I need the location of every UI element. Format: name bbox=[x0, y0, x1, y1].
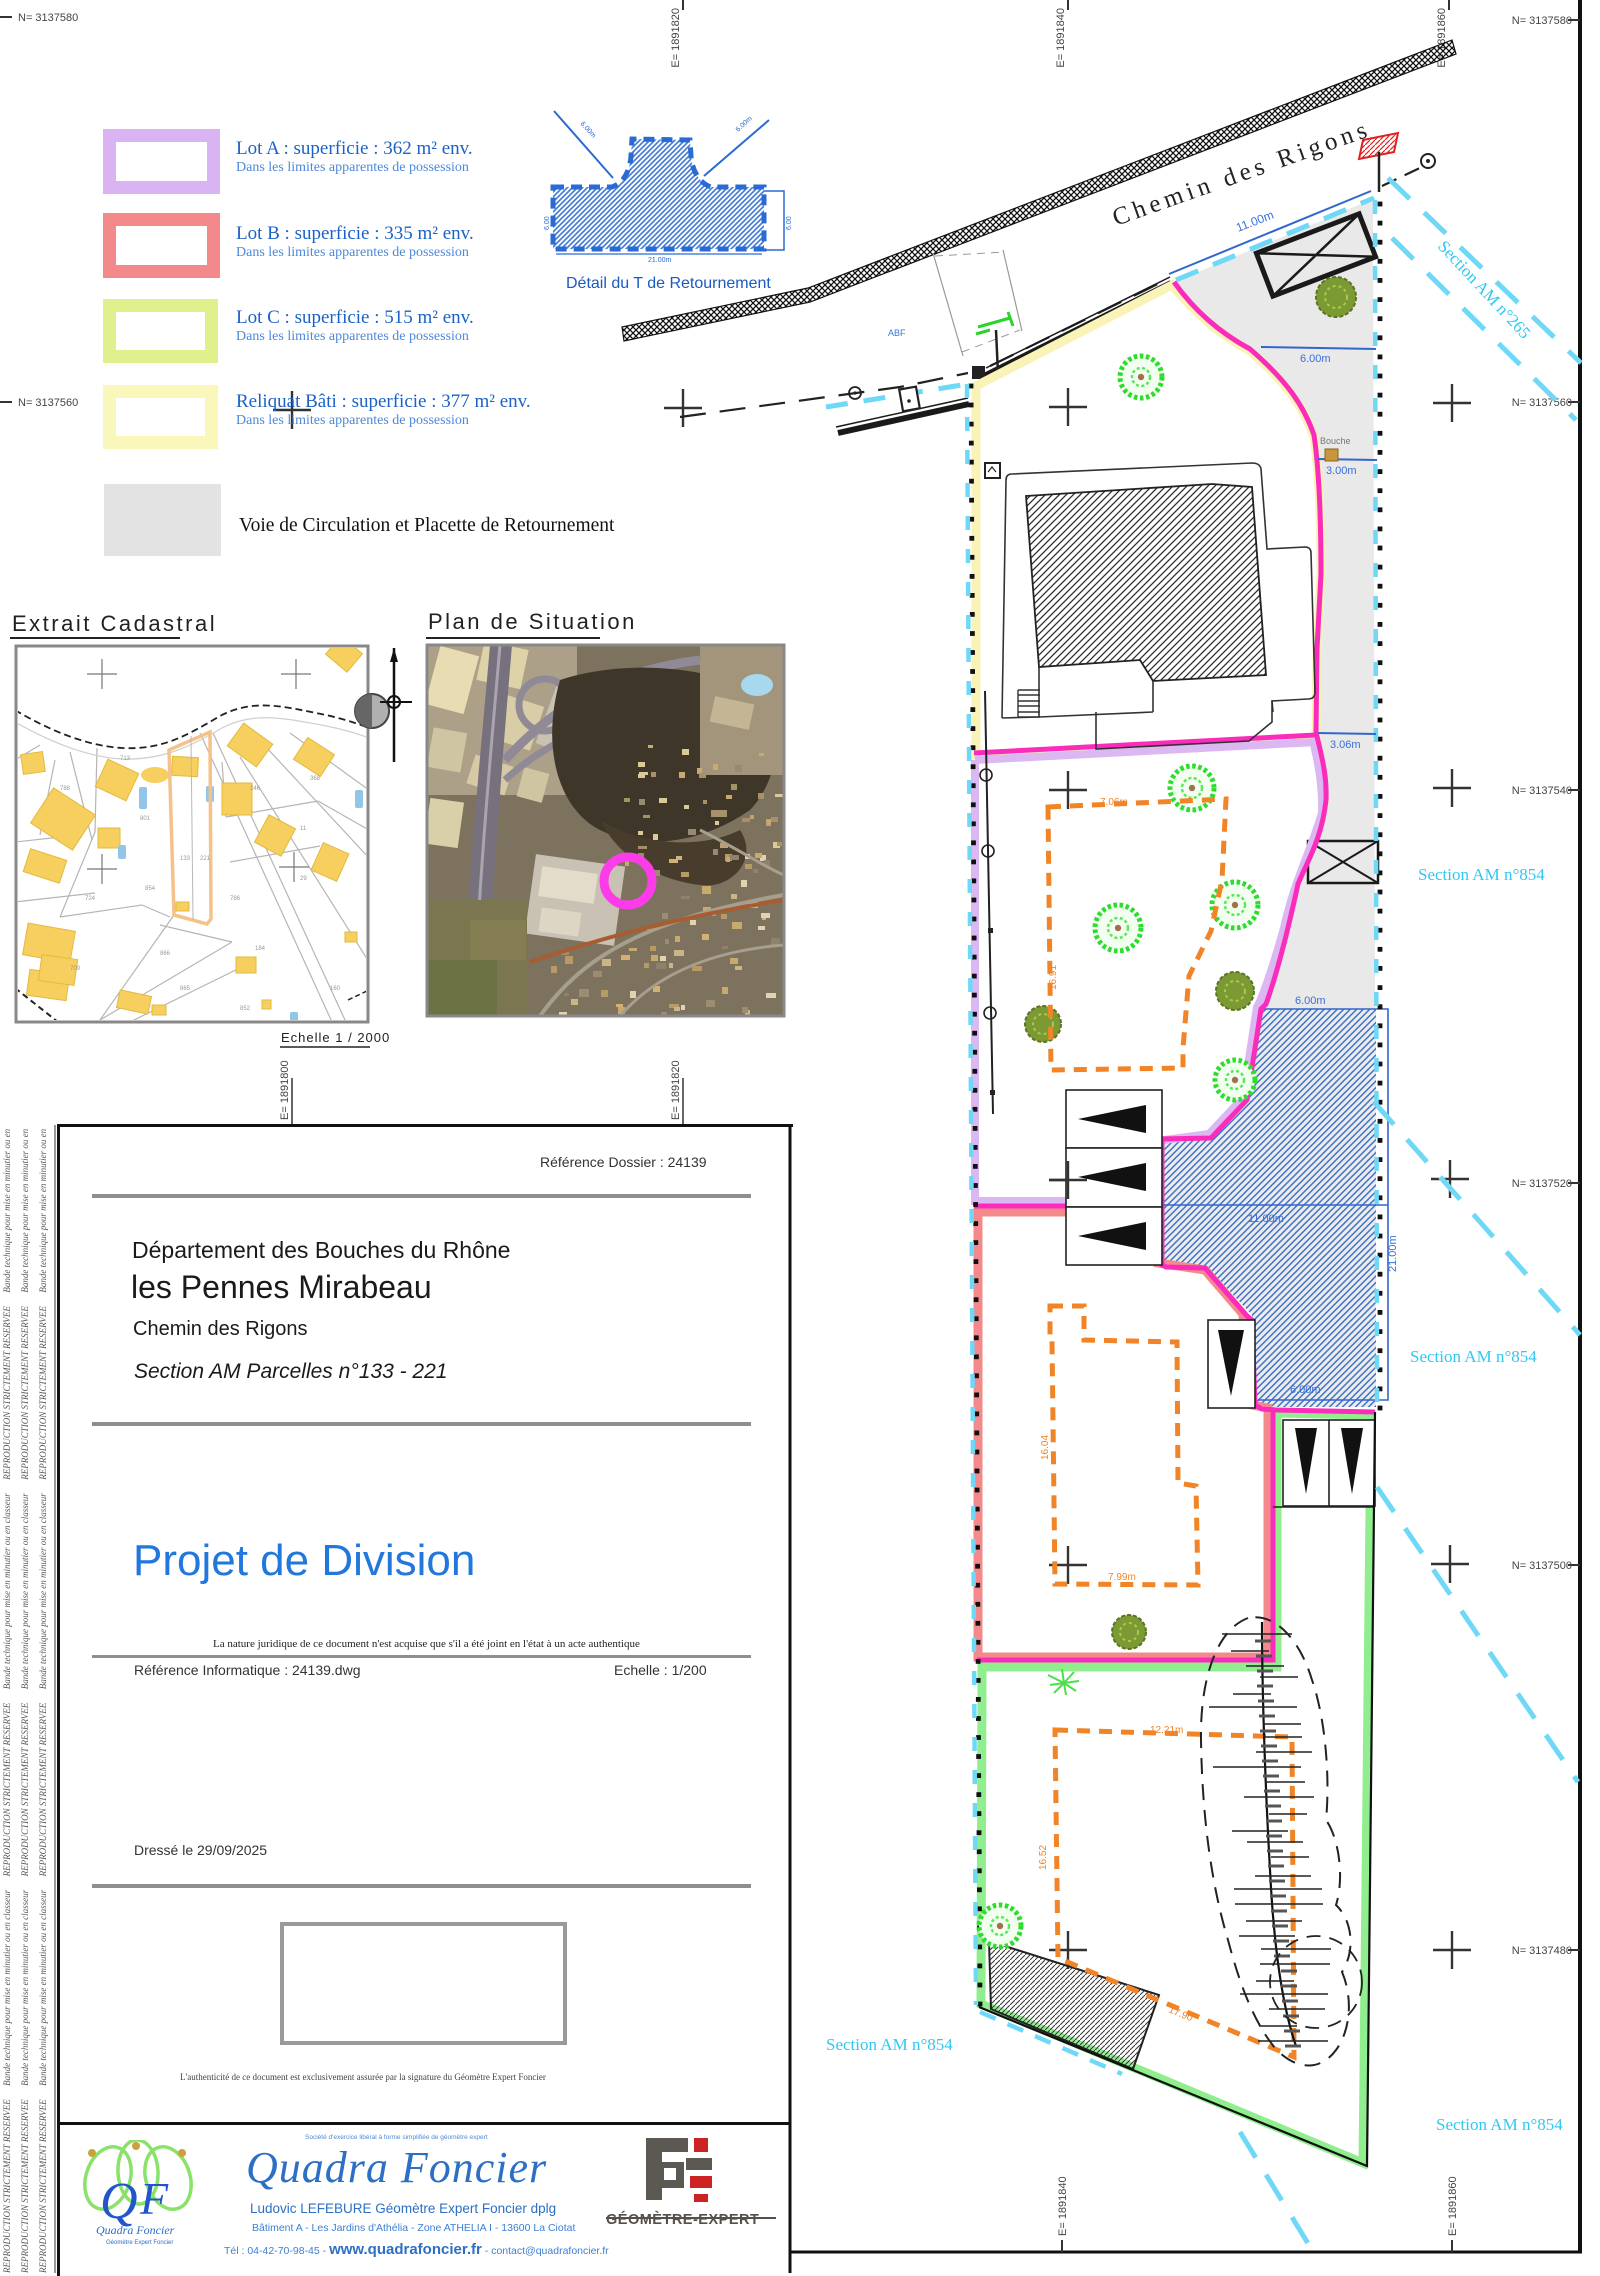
svg-text:184: 184 bbox=[255, 946, 266, 952]
svg-text:6.00m: 6.00m bbox=[579, 121, 598, 140]
svg-text:160: 160 bbox=[330, 986, 341, 992]
svg-text:788: 788 bbox=[60, 786, 71, 792]
svg-text:3.06m: 3.06m bbox=[1330, 739, 1361, 751]
svg-text:6.00m: 6.00m bbox=[1300, 353, 1331, 365]
svg-text:E= 1891820: E= 1891820 bbox=[670, 8, 682, 68]
svg-text:E= 1891820: E= 1891820 bbox=[670, 1060, 682, 1120]
svg-text:6.00: 6.00 bbox=[786, 216, 793, 230]
svg-text:29: 29 bbox=[300, 876, 307, 882]
svg-text:16.52: 16.52 bbox=[1038, 1845, 1049, 1870]
svg-text:N= 3137520: N= 3137520 bbox=[1512, 1178, 1572, 1190]
svg-text:865: 865 bbox=[180, 986, 191, 992]
svg-text:17.90: 17.90 bbox=[1167, 2005, 1195, 2025]
svg-text:21.00m: 21.00m bbox=[1387, 1235, 1399, 1272]
svg-text:F: F bbox=[139, 2173, 169, 2224]
svg-text:Section AM n°854: Section AM n°854 bbox=[1410, 1347, 1537, 1366]
svg-text:221: 221 bbox=[200, 856, 211, 862]
svg-text:E= 1891840: E= 1891840 bbox=[1057, 2176, 1069, 2236]
svg-text:N= 3137560: N= 3137560 bbox=[1512, 397, 1572, 409]
svg-text:11.00m: 11.00m bbox=[1234, 208, 1276, 235]
svg-text:Section AM n°854: Section AM n°854 bbox=[1436, 2115, 1563, 2134]
svg-text:724: 724 bbox=[85, 896, 96, 902]
svg-text:6.00m: 6.00m bbox=[735, 115, 754, 133]
svg-text:Bouche: Bouche bbox=[1320, 436, 1351, 446]
svg-text:11: 11 bbox=[300, 826, 307, 832]
svg-text:E= 1891840: E= 1891840 bbox=[1055, 8, 1067, 68]
svg-text:Q: Q bbox=[100, 2173, 138, 2230]
svg-text:Détail du T de Retournement: Détail du T de Retournement bbox=[566, 275, 771, 292]
svg-text:N= 3137500: N= 3137500 bbox=[1512, 1560, 1572, 1572]
svg-text:246: 246 bbox=[250, 786, 261, 792]
svg-text:Echelle 1 / 2000: Echelle 1 / 2000 bbox=[281, 1030, 390, 1045]
svg-text:N= 3137480: N= 3137480 bbox=[1512, 1945, 1572, 1957]
svg-text:6.00: 6.00 bbox=[544, 216, 551, 230]
svg-text:Géomètre Expert Foncier: Géomètre Expert Foncier bbox=[106, 2240, 173, 2246]
svg-text:N= 3137580: N= 3137580 bbox=[18, 12, 78, 24]
svg-text:6.00m: 6.00m bbox=[1295, 995, 1326, 1007]
svg-text:Extrait Cadastral: Extrait Cadastral bbox=[12, 611, 217, 636]
svg-text:Section AM n°854: Section AM n°854 bbox=[1418, 865, 1545, 884]
svg-text:709: 709 bbox=[70, 966, 81, 972]
svg-text:12.21m: 12.21m bbox=[1150, 1725, 1183, 1736]
svg-text:368: 368 bbox=[310, 776, 321, 782]
svg-text:713: 713 bbox=[120, 756, 131, 762]
svg-text:E= 1891800: E= 1891800 bbox=[279, 1060, 291, 1120]
svg-text:133: 133 bbox=[180, 856, 191, 862]
svg-text:7.06m: 7.06m bbox=[1100, 797, 1128, 808]
svg-text:852: 852 bbox=[240, 1006, 251, 1012]
svg-text:11.00m: 11.00m bbox=[1248, 1213, 1284, 1225]
svg-text:N= 3137560: N= 3137560 bbox=[18, 397, 78, 409]
svg-text:21.00m: 21.00m bbox=[648, 257, 672, 264]
svg-text:Quadra Foncier: Quadra Foncier bbox=[96, 2223, 175, 2237]
svg-text:786: 786 bbox=[230, 896, 241, 902]
svg-text:Plan de Situation: Plan de Situation bbox=[428, 609, 637, 634]
svg-text:6.00m: 6.00m bbox=[1290, 1384, 1321, 1396]
svg-text:7.99m: 7.99m bbox=[1108, 1572, 1136, 1583]
svg-text:ABF: ABF bbox=[888, 328, 906, 338]
svg-text:16.04: 16.04 bbox=[1040, 1435, 1051, 1460]
svg-text:3.00m: 3.00m bbox=[1326, 465, 1357, 477]
svg-text:801: 801 bbox=[140, 816, 151, 822]
svg-text:N= 3137540: N= 3137540 bbox=[1512, 785, 1572, 797]
svg-text:866: 866 bbox=[160, 951, 171, 957]
svg-text:E= 1891860: E= 1891860 bbox=[1447, 2176, 1459, 2236]
svg-text:N= 3137580: N= 3137580 bbox=[1512, 15, 1572, 27]
svg-text:GÉOMÈTRE-EXPERT: GÉOMÈTRE-EXPERT bbox=[606, 2211, 759, 2228]
svg-text:Section AM n°854: Section AM n°854 bbox=[826, 2035, 953, 2054]
svg-text:854: 854 bbox=[145, 886, 156, 892]
svg-text:16.91: 16.91 bbox=[1048, 965, 1059, 990]
